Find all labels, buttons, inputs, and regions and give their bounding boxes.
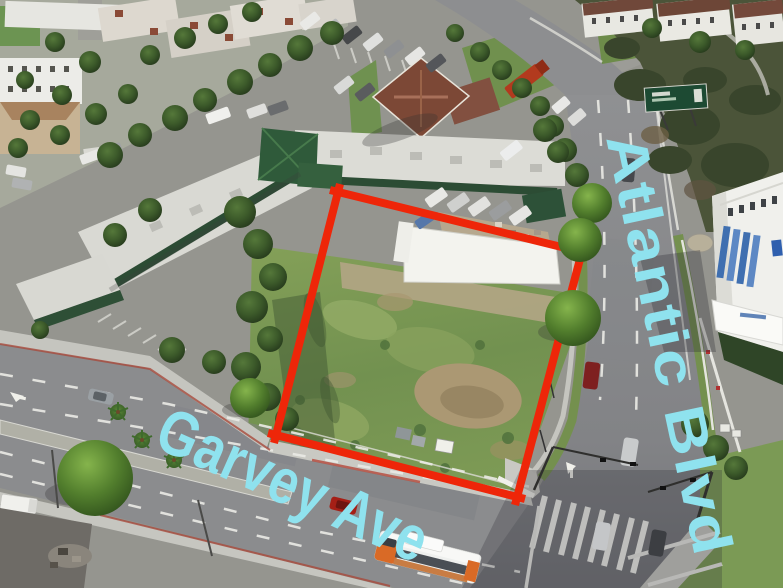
house-roof-slope: [0, 102, 80, 120]
aerial-photo-listing: Garvey Ave Atlantic Blvd: [0, 0, 783, 588]
aerial-photo: Garvey Ave Atlantic Blvd: [0, 0, 783, 588]
planter-circle: [687, 234, 713, 252]
lot-sign: [435, 439, 454, 454]
building-sign: [771, 240, 783, 257]
